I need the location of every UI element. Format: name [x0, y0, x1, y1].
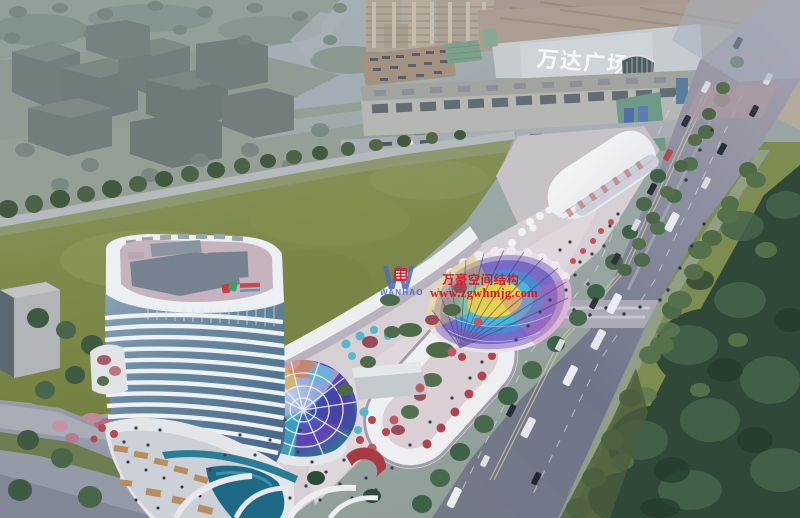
svg-text:WANHAO: WANHAO: [380, 288, 424, 297]
svg-text:www.zgwhmjg.com: www.zgwhmjg.com: [430, 286, 538, 300]
